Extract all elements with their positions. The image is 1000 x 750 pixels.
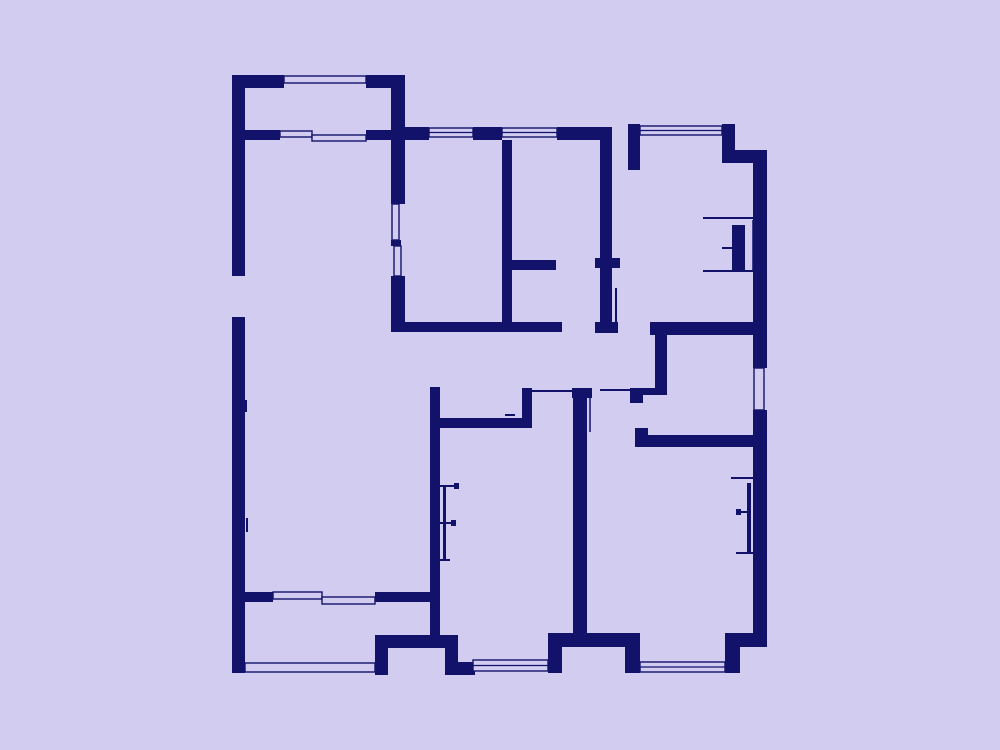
wall-segment — [630, 388, 643, 403]
window-segment — [394, 246, 401, 276]
floor-plan-canvas — [0, 0, 1000, 750]
wall-segment — [232, 317, 245, 673]
door-leaf — [747, 483, 751, 553]
window-segment — [280, 131, 312, 137]
wall-segment — [655, 322, 667, 395]
wall-segment — [391, 240, 401, 246]
wall-segment — [753, 150, 767, 368]
wall-segment — [572, 388, 592, 398]
door-leaf — [732, 225, 745, 270]
window-segment — [245, 663, 375, 672]
window-segment — [284, 76, 366, 83]
window-segment — [754, 368, 764, 410]
wall-segment — [245, 130, 280, 140]
wall-segment — [740, 633, 765, 647]
wall-segment — [375, 592, 440, 602]
wall-segment — [650, 322, 765, 335]
wall-segment — [625, 647, 640, 673]
wall-segment — [232, 75, 245, 276]
wall-segment — [391, 322, 562, 332]
wall-segment — [548, 633, 562, 673]
window-segment — [312, 135, 366, 141]
wall-segment — [375, 635, 388, 675]
wall-segment — [595, 322, 618, 333]
floor-plan — [0, 0, 1000, 750]
wall-segment — [628, 124, 640, 170]
window-segment — [322, 597, 375, 604]
window-segment — [392, 204, 399, 240]
wall-segment — [435, 418, 530, 428]
wall-segment — [557, 127, 612, 140]
wall-segment — [635, 428, 648, 435]
wall-segment — [722, 124, 735, 153]
wall-segment — [600, 140, 612, 332]
wall-segment — [366, 75, 405, 88]
wall-segment — [573, 398, 587, 635]
wall-segment — [502, 140, 512, 322]
wall-segment — [562, 633, 640, 647]
wall-segment — [391, 88, 405, 204]
wall-segment — [725, 633, 740, 673]
window-segment — [273, 592, 322, 599]
wall-segment — [405, 127, 429, 140]
wall-segment — [522, 388, 532, 428]
wall-segment — [473, 127, 502, 140]
wall-segment — [366, 130, 391, 140]
wall-segment — [243, 592, 273, 602]
wall-segment — [635, 435, 765, 447]
wall-segment — [512, 260, 556, 270]
wall-segment — [232, 75, 284, 88]
